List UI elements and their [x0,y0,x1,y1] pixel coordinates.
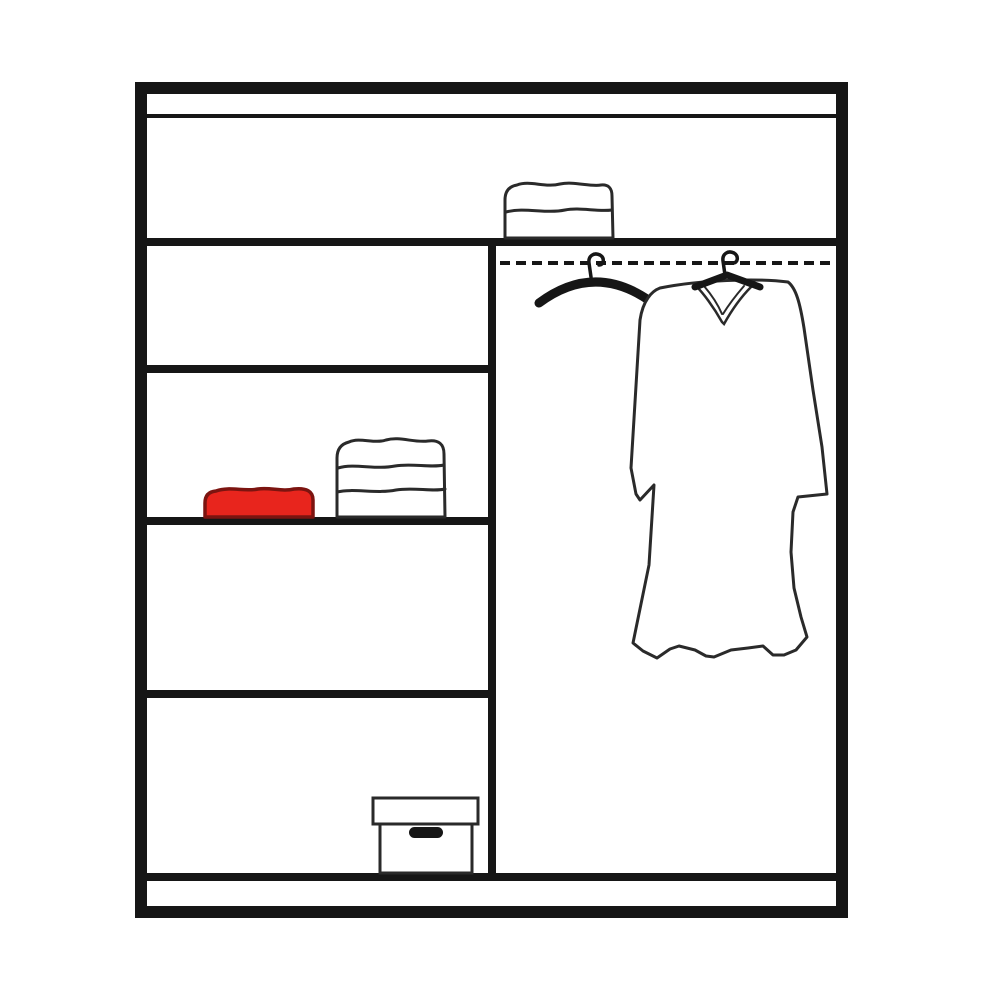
box-lid [373,798,478,824]
wardrobe-diagram-svg [0,0,999,999]
box-handle-slot [409,827,443,838]
garment-body [631,280,827,658]
storage-box [373,798,478,873]
folded-towel-outline [337,439,445,517]
top-shelf-towel-stack [505,183,613,238]
middle-shelf-towel-stack [337,439,445,517]
red-folded-towel [205,489,313,517]
garment-on-hanger [631,252,827,658]
wardrobe-diagram [0,0,999,999]
towel-fold-line [506,209,612,212]
